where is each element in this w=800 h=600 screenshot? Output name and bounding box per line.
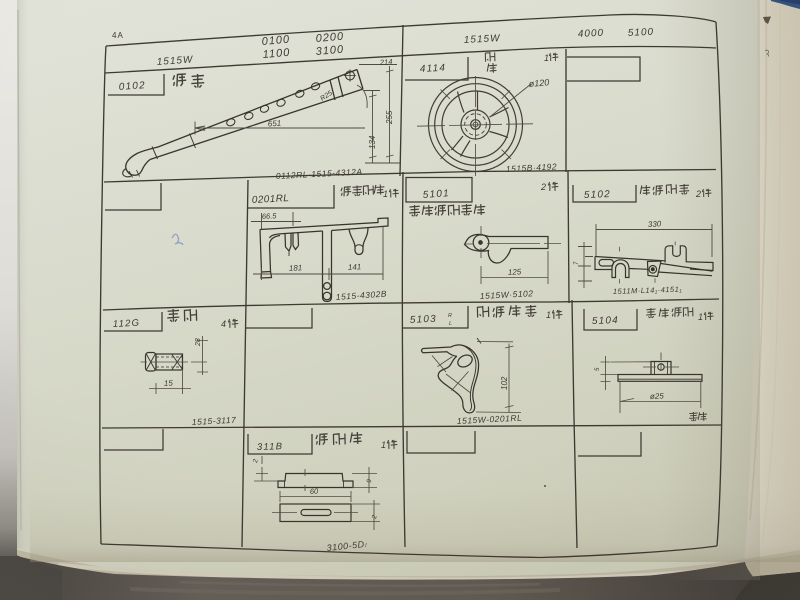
- svg-text:0201RL: 0201RL: [252, 193, 290, 206]
- svg-text:214: 214: [379, 57, 393, 67]
- svg-text:1: 1: [381, 440, 386, 450]
- svg-text:66.5: 66.5: [262, 211, 278, 221]
- svg-text:112G: 112G: [113, 318, 141, 330]
- svg-text:311B: 311B: [257, 441, 284, 453]
- svg-text:125: 125: [508, 267, 522, 277]
- svg-text:3100: 3100: [315, 44, 344, 58]
- svg-text:4: 4: [221, 319, 226, 329]
- svg-text:0100: 0100: [261, 34, 290, 48]
- svg-text:1: 1: [546, 310, 551, 320]
- svg-text:ø120: ø120: [528, 77, 549, 89]
- svg-text:15: 15: [164, 379, 174, 388]
- svg-text:L: L: [449, 321, 452, 327]
- svg-text:5104: 5104: [592, 315, 619, 327]
- svg-text:5101: 5101: [422, 188, 450, 201]
- svg-text:255: 255: [385, 110, 394, 125]
- svg-text:5103: 5103: [410, 314, 438, 326]
- svg-text:102: 102: [500, 376, 509, 390]
- svg-text:4A: 4A: [112, 31, 124, 40]
- svg-text:4114: 4114: [420, 63, 447, 75]
- svg-text:330: 330: [648, 219, 662, 229]
- svg-text:0102: 0102: [118, 80, 146, 93]
- svg-text:1: 1: [383, 189, 388, 199]
- svg-text:5100: 5100: [628, 27, 655, 39]
- svg-text:5102: 5102: [584, 189, 611, 201]
- svg-text:0200: 0200: [315, 31, 344, 45]
- svg-text:141: 141: [348, 262, 362, 272]
- svg-text:4000: 4000: [578, 28, 605, 40]
- svg-text:651: 651: [268, 119, 282, 129]
- svg-text:1: 1: [544, 53, 549, 63]
- svg-text:ø25: ø25: [650, 392, 665, 401]
- svg-text:28: 28: [195, 338, 202, 347]
- svg-text:2: 2: [695, 189, 701, 199]
- svg-text:2: 2: [540, 182, 546, 192]
- svg-text:1100: 1100: [262, 47, 291, 61]
- svg-text:1: 1: [698, 312, 703, 322]
- svg-text:181: 181: [289, 263, 303, 273]
- svg-text:60: 60: [310, 487, 320, 496]
- svg-text:1515W: 1515W: [464, 33, 502, 46]
- svg-text:134: 134: [368, 135, 377, 149]
- svg-text:R: R: [448, 313, 452, 319]
